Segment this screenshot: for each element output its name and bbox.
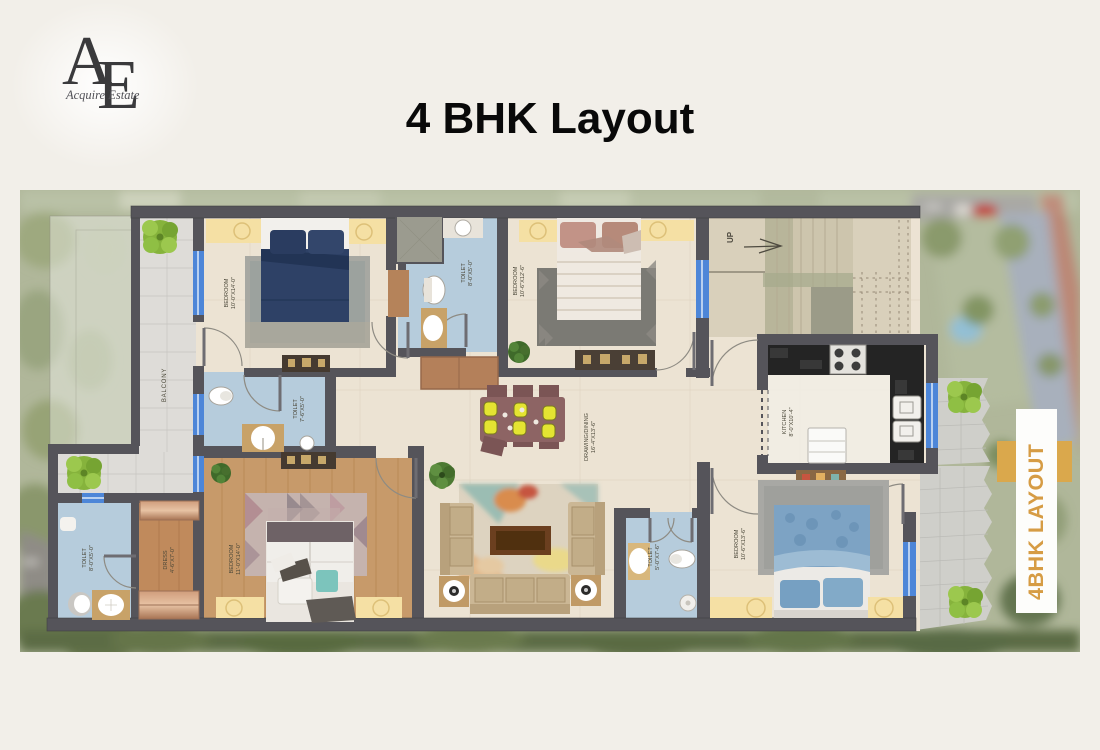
svg-text:10'-6"X12'-6": 10'-6"X12'-6" — [520, 265, 526, 297]
svg-text:8'-0"X5'-0": 8'-0"X5'-0" — [89, 545, 95, 571]
svg-text:TOILET: TOILET — [648, 547, 654, 567]
svg-text:8'-0"X5'-0": 8'-0"X5'-0" — [468, 260, 474, 286]
svg-text:BALCONY: BALCONY — [162, 368, 168, 402]
svg-text:BEDROOM: BEDROOM — [513, 266, 519, 295]
svg-text:TOILET: TOILET — [461, 263, 467, 283]
svg-text:KITCHEN: KITCHEN — [782, 410, 788, 435]
svg-text:8'-0"X10'-4": 8'-0"X10'-4" — [789, 407, 795, 436]
svg-text:10'-0"X14'-0": 10'-0"X14'-0" — [231, 277, 237, 309]
svg-text:UP: UP — [726, 231, 735, 243]
svg-text:BEDROOM: BEDROOM — [734, 529, 740, 558]
svg-text:DRESS: DRESS — [163, 550, 169, 570]
svg-text:BEDROOM: BEDROOM — [229, 544, 235, 573]
svg-text:16'-4"X13'-6": 16'-4"X13'-6" — [591, 421, 597, 453]
svg-text:4BHK LAYOUT: 4BHK LAYOUT — [1024, 444, 1048, 600]
svg-text:5'-0"X7'-6": 5'-0"X7'-6" — [655, 544, 661, 570]
svg-text:TOILET: TOILET — [293, 399, 299, 419]
svg-text:DRAWING/DINING: DRAWING/DINING — [584, 413, 590, 461]
svg-text:11'-0"X14'-0": 11'-0"X14'-0" — [236, 543, 242, 575]
svg-text:7'-6"X5'-0": 7'-6"X5'-0" — [300, 396, 306, 422]
svg-text:BEDROOM: BEDROOM — [224, 278, 230, 307]
svg-text:4'-6"X7'-0": 4'-6"X7'-0" — [170, 547, 176, 573]
svg-text:10'-6"X13'-6": 10'-6"X13'-6" — [741, 528, 747, 560]
svg-text:TOILET: TOILET — [82, 548, 88, 568]
